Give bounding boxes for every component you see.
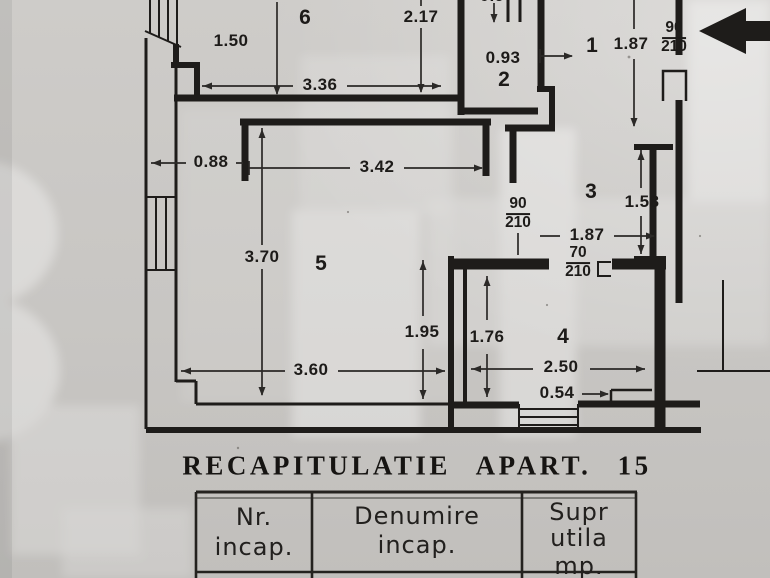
room-number: 1 — [586, 34, 598, 58]
dimension-label: 1.87 — [614, 34, 649, 54]
table-header-denumire-incap: Denumire — [354, 502, 480, 530]
room-number: 3 — [585, 180, 597, 204]
table-header-denumire-incap: incap. — [378, 531, 457, 559]
table-header-supr-utila-mp: utila — [550, 524, 608, 552]
table-header-supr-utila-mp: Supr — [549, 498, 609, 526]
dimension-label: 0.54 — [540, 383, 575, 403]
dimension-label: 3.36 — [303, 75, 338, 95]
door-size-fraction: 70210 — [565, 245, 591, 281]
dimension-label: 0.93 — [486, 48, 521, 68]
floorplan-drawing — [0, 0, 770, 578]
room-number: 6 — [299, 6, 311, 30]
dimension-label: 3.70 — [245, 247, 280, 267]
dimension-label: 3.60 — [294, 360, 329, 380]
recap-title: RECAPITULATIE APART. 15 — [182, 451, 651, 482]
dimension-label: 1.76 — [470, 327, 505, 347]
dimension-label: 3.42 — [360, 157, 395, 177]
table-header-nr-incap: Nr. — [236, 503, 272, 531]
left-edge-shade — [0, 0, 12, 578]
clipped-dimension-label: 1.87 — [586, 0, 621, 5]
clipped-dimension-label: 0.97 — [480, 0, 515, 6]
dimension-label: 1.87 — [570, 225, 605, 245]
door-size-fraction: 90210 — [661, 20, 687, 56]
table-header-nr-incap: incap. — [215, 533, 294, 561]
dimension-label: 0.88 — [194, 152, 229, 172]
room-number: 4 — [557, 325, 569, 349]
dimension-label: 2.17 — [404, 7, 439, 27]
dimension-label: 1.58 — [625, 192, 660, 212]
door-size-fraction: 90210 — [505, 196, 531, 232]
dimension-label: 1.50 — [214, 31, 249, 51]
floorplan-photo: RECAPITULATIE APART. 15 1.502.173.360.93… — [0, 0, 770, 578]
room-number: 5 — [315, 252, 327, 276]
dimension-label: 1.95 — [405, 322, 440, 342]
table-header-supr-utila-mp: mp. — [554, 552, 603, 578]
dimension-label: 2.50 — [544, 357, 579, 377]
room-number: 2 — [498, 68, 510, 92]
